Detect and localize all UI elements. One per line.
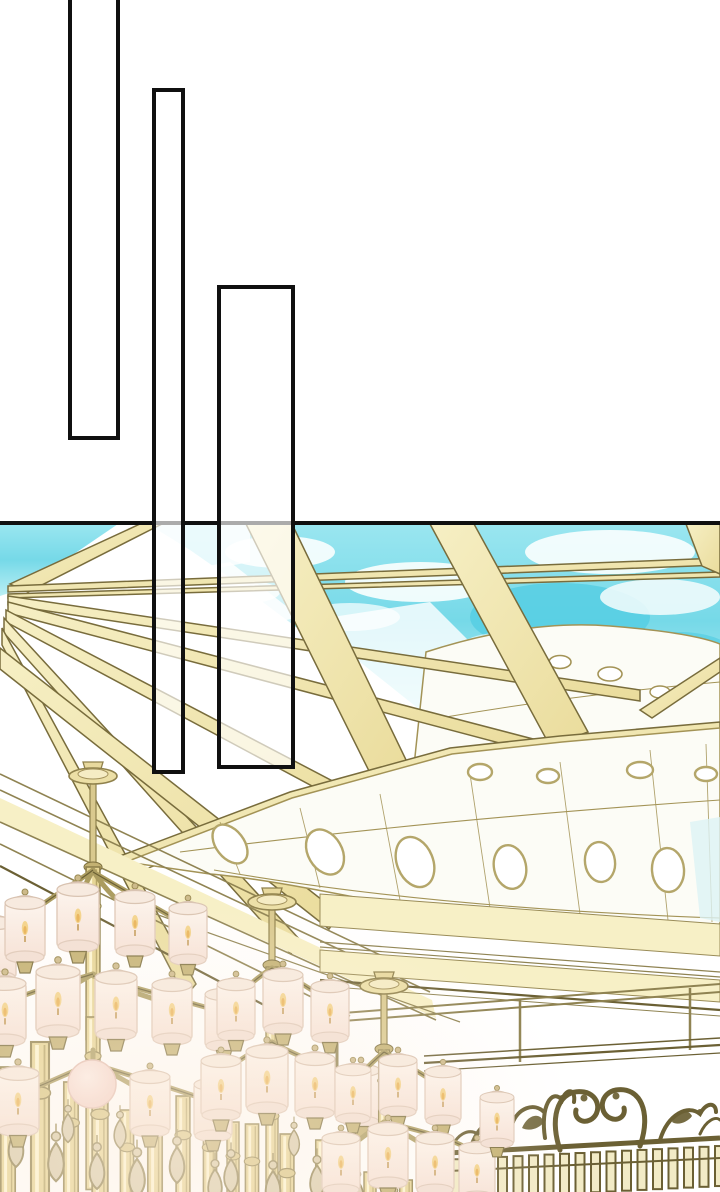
panel-bar-1 (68, 0, 120, 440)
comic-panel (0, 0, 720, 1192)
panel-bar-3 (217, 285, 295, 769)
panel-bar-2 (152, 88, 185, 774)
panel-border-line (0, 521, 720, 525)
warm-light-wash (0, 852, 560, 1192)
ballroom-ceiling-illustration (0, 522, 720, 1192)
